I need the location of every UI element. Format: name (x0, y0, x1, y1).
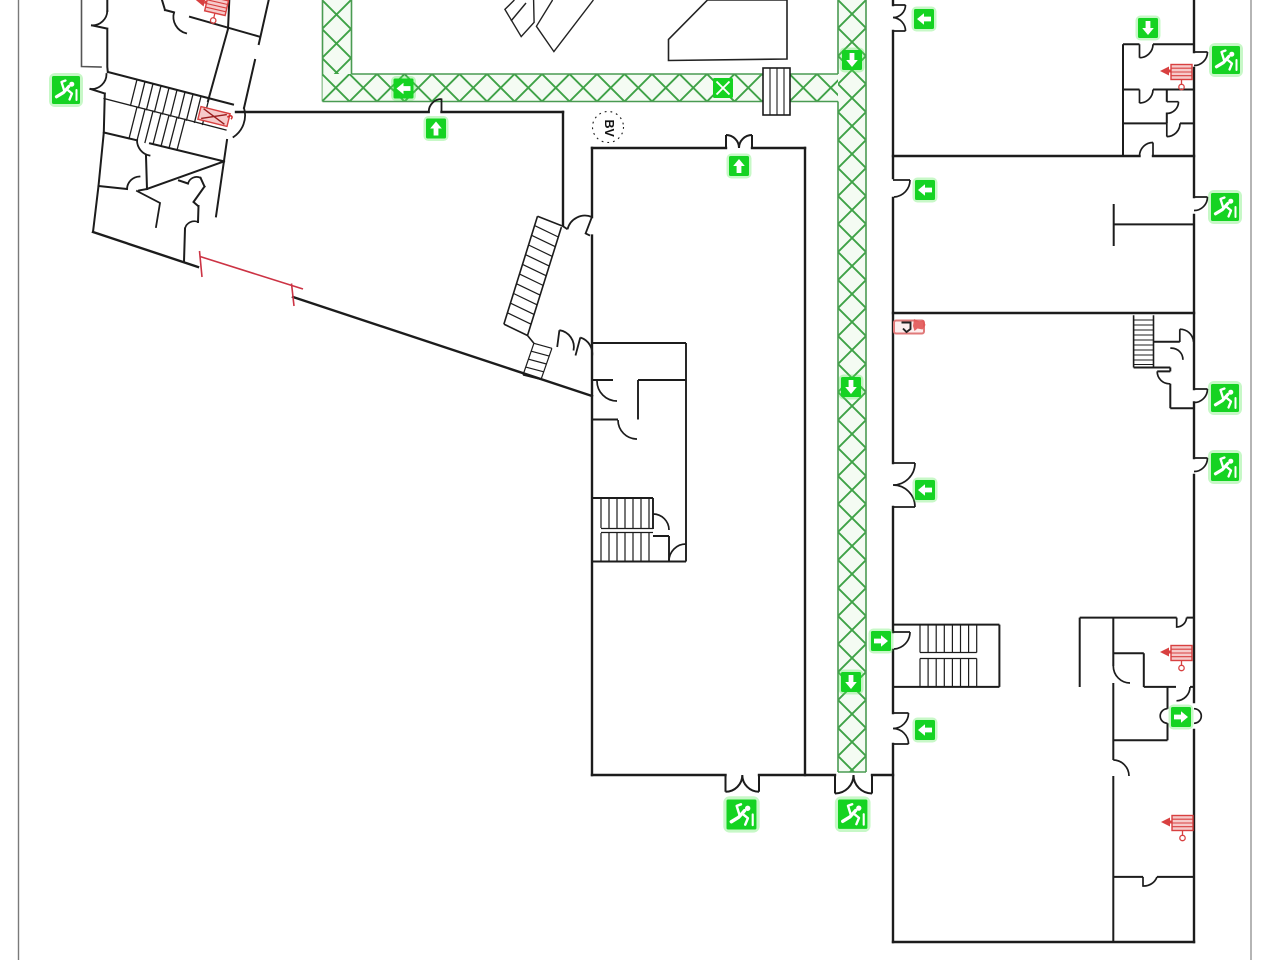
svg-text:BV: BV (602, 120, 616, 138)
